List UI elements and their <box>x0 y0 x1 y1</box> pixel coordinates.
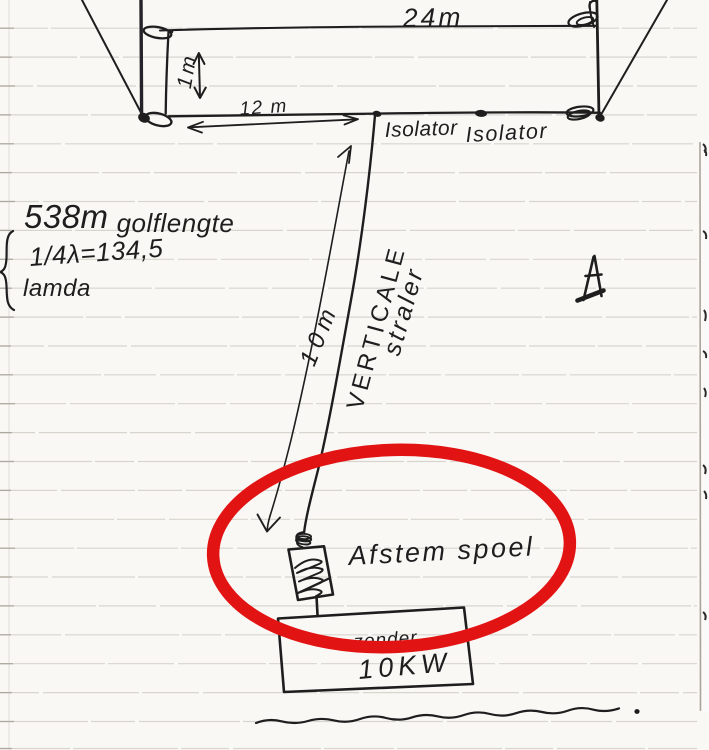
svg-text:24m: 24m <box>402 2 464 33</box>
svg-text:Isolator: Isolator <box>465 119 549 147</box>
svg-text:lamda: lamda <box>23 275 91 302</box>
svg-text:12 m: 12 m <box>239 96 289 120</box>
svg-text:Isolator: Isolator <box>384 116 458 142</box>
